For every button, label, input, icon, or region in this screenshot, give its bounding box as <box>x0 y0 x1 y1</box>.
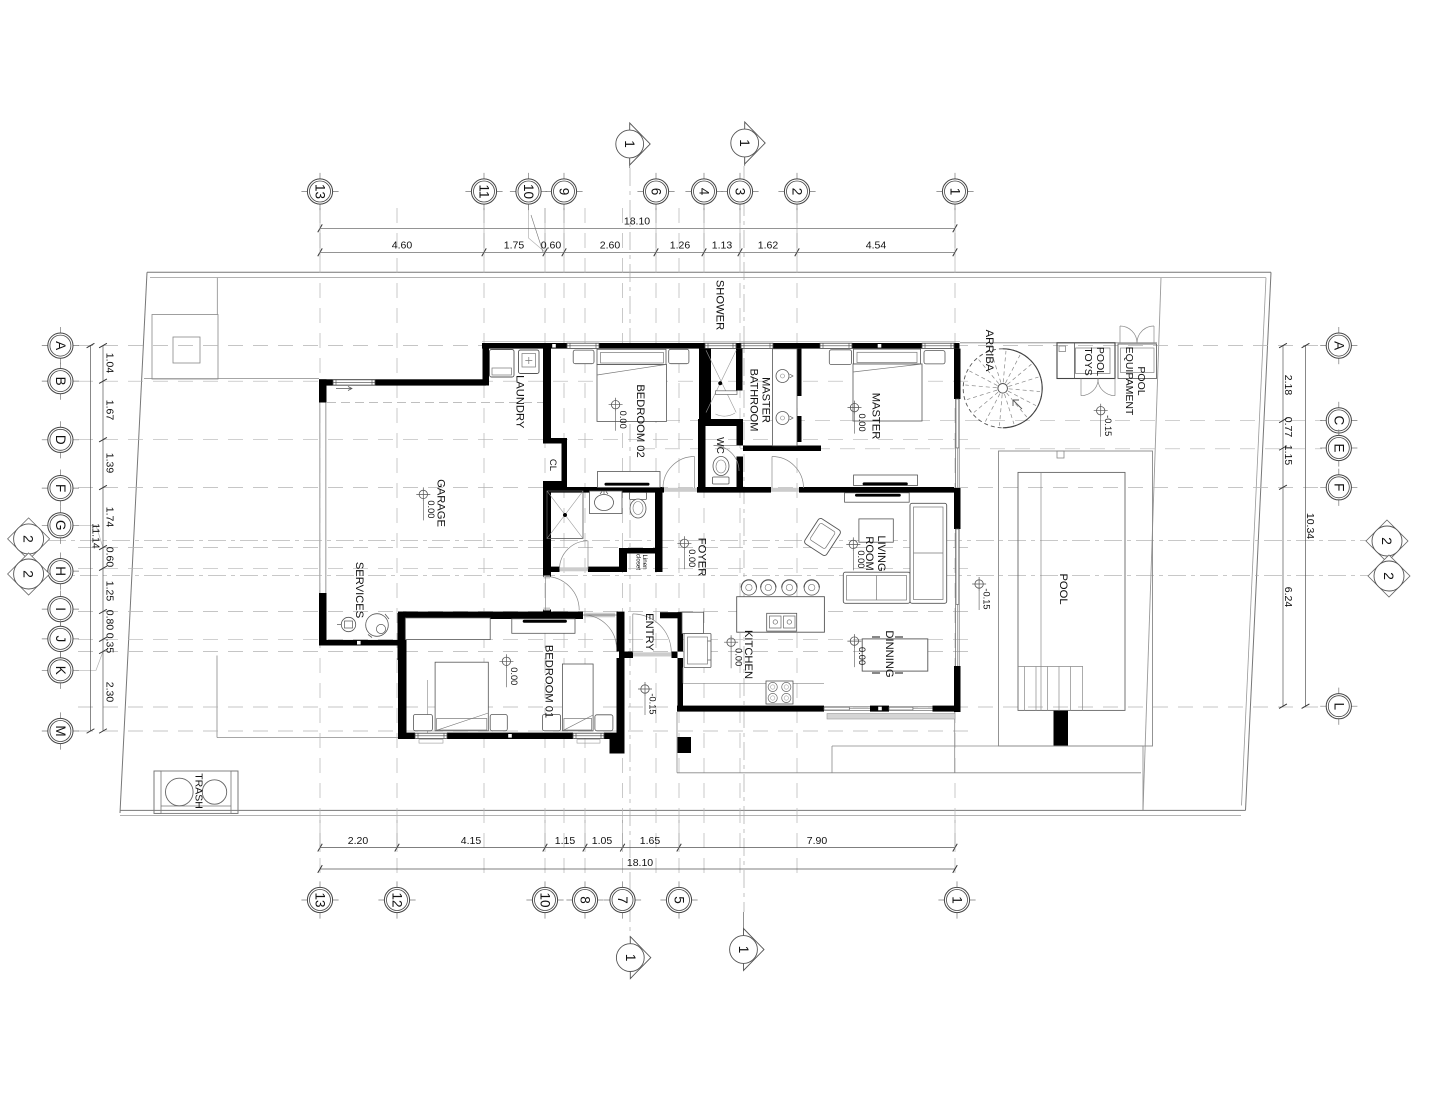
svg-text:6.24: 6.24 <box>1282 587 1294 608</box>
svg-text:0.00: 0.00 <box>856 550 866 568</box>
svg-text:2: 2 <box>1381 572 1397 580</box>
svg-text:1.04: 1.04 <box>104 353 116 374</box>
svg-text:1.39: 1.39 <box>104 453 116 474</box>
svg-text:F: F <box>1331 483 1346 491</box>
svg-text:10: 10 <box>538 892 553 907</box>
svg-text:1.62: 1.62 <box>758 240 779 252</box>
svg-text:-0.15: -0.15 <box>648 693 658 714</box>
svg-text:2: 2 <box>21 570 37 578</box>
svg-text:SERVICES: SERVICES <box>353 562 365 618</box>
svg-text:0.00: 0.00 <box>426 500 436 518</box>
svg-text:WC: WC <box>714 437 725 454</box>
svg-text:0.60: 0.60 <box>104 547 116 568</box>
svg-text:J: J <box>53 636 68 643</box>
svg-text:E: E <box>1331 443 1346 452</box>
svg-text:8: 8 <box>578 896 593 904</box>
svg-text:DINNING: DINNING <box>883 630 895 677</box>
svg-text:BEDROOM 01: BEDROOM 01 <box>543 645 555 718</box>
svg-text:1.15: 1.15 <box>1282 445 1294 466</box>
svg-text:7.90: 7.90 <box>807 835 828 847</box>
svg-text:1: 1 <box>950 896 965 904</box>
svg-text:1.13: 1.13 <box>712 240 733 252</box>
svg-text:0.00: 0.00 <box>857 647 867 665</box>
svg-text:13: 13 <box>313 892 328 907</box>
svg-text:4.54: 4.54 <box>866 240 887 252</box>
svg-text:1.26: 1.26 <box>670 240 691 252</box>
svg-text:1: 1 <box>623 954 638 962</box>
svg-text:10.34: 10.34 <box>1304 513 1316 539</box>
svg-text:closet: closet <box>635 554 642 570</box>
svg-text:2: 2 <box>1379 537 1395 545</box>
svg-text:2: 2 <box>21 535 37 543</box>
svg-text:POOL: POOL <box>1135 366 1147 395</box>
svg-text:12: 12 <box>390 892 405 907</box>
svg-text:0.77: 0.77 <box>1282 417 1294 438</box>
svg-text:D: D <box>53 435 68 445</box>
svg-text:11.14: 11.14 <box>90 523 102 549</box>
svg-text:B: B <box>53 377 68 386</box>
svg-text:0.00: 0.00 <box>734 648 744 666</box>
svg-text:CL: CL <box>547 459 558 471</box>
svg-text:4: 4 <box>697 188 712 196</box>
svg-text:9: 9 <box>557 188 572 196</box>
svg-text:18.10: 18.10 <box>627 857 653 869</box>
svg-text:3: 3 <box>733 188 748 196</box>
svg-text:2.18: 2.18 <box>1282 375 1294 396</box>
svg-text:4.15: 4.15 <box>461 835 482 847</box>
svg-text:1.25: 1.25 <box>104 581 116 602</box>
svg-text:ARRIBA: ARRIBA <box>983 330 995 372</box>
svg-text:A: A <box>1331 341 1346 350</box>
svg-text:1: 1 <box>948 188 963 196</box>
svg-text:TOYS: TOYS <box>1082 347 1094 375</box>
svg-text:1.67: 1.67 <box>104 400 116 421</box>
svg-text:0.00: 0.00 <box>687 549 697 567</box>
svg-text:2.30: 2.30 <box>104 682 116 703</box>
svg-text:-0.15: -0.15 <box>982 588 992 609</box>
svg-text:2.20: 2.20 <box>348 835 369 847</box>
svg-text:6: 6 <box>649 188 664 196</box>
svg-text:G: G <box>53 520 68 531</box>
svg-text:MASTER: MASTER <box>870 393 882 440</box>
svg-text:1.75: 1.75 <box>504 240 525 252</box>
svg-text:13: 13 <box>313 184 328 199</box>
svg-text:MASTER: MASTER <box>760 377 772 423</box>
svg-text:C: C <box>1331 416 1346 426</box>
svg-text:POOL: POOL <box>1057 573 1069 604</box>
svg-text:BATHROOM: BATHROOM <box>748 369 760 432</box>
svg-text:1.74: 1.74 <box>104 507 116 528</box>
svg-text:18.10: 18.10 <box>624 216 650 228</box>
svg-text:1: 1 <box>736 946 751 954</box>
svg-text:A: A <box>53 341 68 350</box>
svg-text:1: 1 <box>622 140 637 148</box>
svg-text:10: 10 <box>521 184 536 199</box>
svg-text:2: 2 <box>790 188 805 196</box>
svg-text:0.00: 0.00 <box>857 414 867 432</box>
svg-text:F: F <box>53 484 68 492</box>
svg-text:ENTRY: ENTRY <box>643 613 655 651</box>
svg-text:0.00: 0.00 <box>618 411 628 429</box>
svg-text:H: H <box>53 566 68 576</box>
svg-text:1.15: 1.15 <box>555 835 576 847</box>
svg-text:I: I <box>53 607 68 611</box>
svg-text:5: 5 <box>672 896 687 904</box>
svg-text:7: 7 <box>615 896 630 904</box>
svg-text:M: M <box>53 725 68 736</box>
svg-text:POOL: POOL <box>1094 347 1106 376</box>
svg-text:1.65: 1.65 <box>640 835 661 847</box>
svg-text:EQUIPAMENT: EQUIPAMENT <box>1123 347 1135 416</box>
svg-text:1.05: 1.05 <box>592 835 613 847</box>
svg-text:0.60: 0.60 <box>541 240 562 252</box>
svg-text:L: L <box>1331 702 1346 710</box>
svg-text:4.60: 4.60 <box>392 240 413 252</box>
svg-text:0.00: 0.00 <box>509 667 519 685</box>
svg-text:SHOWER: SHOWER <box>714 280 726 330</box>
svg-text:LIVING: LIVING <box>875 535 887 571</box>
svg-text:K: K <box>53 666 68 675</box>
svg-text:0.35: 0.35 <box>104 633 116 654</box>
svg-text:TRASH: TRASH <box>192 773 204 809</box>
svg-text:LAUNDRY: LAUNDRY <box>514 375 526 429</box>
svg-text:1: 1 <box>737 139 752 147</box>
svg-text:2.60: 2.60 <box>600 240 621 252</box>
svg-text:BEDROOM 02: BEDROOM 02 <box>634 384 646 457</box>
svg-text:11: 11 <box>477 184 492 198</box>
svg-text:-0.15: -0.15 <box>1103 415 1113 436</box>
svg-text:0.80: 0.80 <box>104 610 116 631</box>
